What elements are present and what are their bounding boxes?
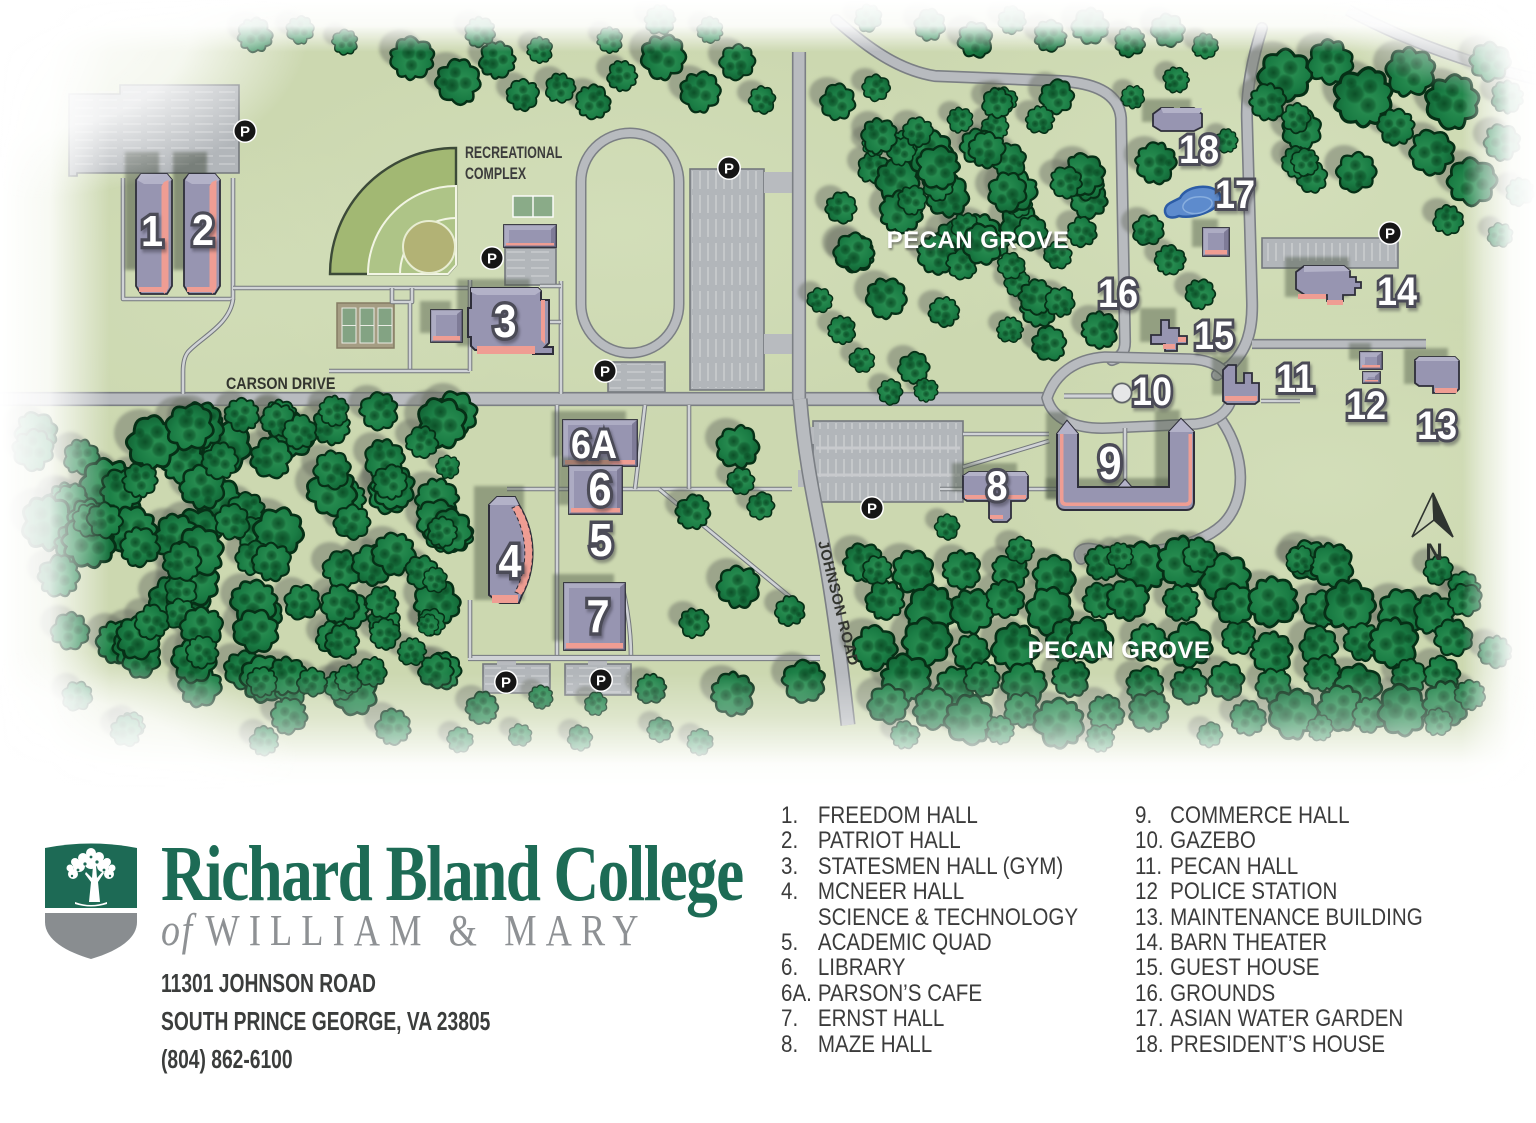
svg-text:3: 3 bbox=[493, 296, 516, 348]
svg-text:4: 4 bbox=[498, 536, 522, 588]
svg-text:6A: 6A bbox=[571, 423, 617, 467]
svg-text:7: 7 bbox=[586, 591, 609, 643]
svg-text:15: 15 bbox=[1194, 314, 1234, 358]
svg-text:8: 8 bbox=[986, 463, 1007, 509]
svg-text:PECAN GROVE: PECAN GROVE bbox=[1028, 637, 1211, 664]
svg-text:11: 11 bbox=[1276, 357, 1314, 401]
svg-text:14: 14 bbox=[1377, 270, 1417, 314]
svg-text:CARSON DRIVE: CARSON DRIVE bbox=[226, 375, 335, 393]
svg-text:P: P bbox=[487, 251, 497, 268]
svg-text:5: 5 bbox=[589, 515, 612, 567]
svg-text:18: 18 bbox=[1179, 128, 1219, 172]
svg-text:N: N bbox=[1425, 539, 1442, 566]
svg-text:1: 1 bbox=[141, 206, 163, 255]
svg-text:16: 16 bbox=[1098, 272, 1138, 316]
svg-text:12: 12 bbox=[1346, 384, 1386, 428]
svg-text:P: P bbox=[724, 161, 734, 178]
svg-text:RECREATIONAL: RECREATIONAL bbox=[465, 144, 562, 162]
svg-text:P: P bbox=[501, 675, 511, 692]
svg-text:PECAN GROVE: PECAN GROVE bbox=[887, 227, 1070, 254]
svg-text:P: P bbox=[596, 673, 606, 690]
svg-text:P: P bbox=[240, 124, 250, 141]
svg-text:6: 6 bbox=[588, 464, 611, 516]
svg-text:COMPLEX: COMPLEX bbox=[465, 165, 526, 183]
svg-text:2: 2 bbox=[192, 205, 214, 254]
svg-text:10: 10 bbox=[1132, 370, 1172, 414]
svg-text:P: P bbox=[600, 364, 610, 381]
svg-text:9: 9 bbox=[1098, 438, 1121, 490]
svg-text:P: P bbox=[867, 501, 877, 518]
svg-text:13: 13 bbox=[1417, 404, 1457, 448]
svg-text:17: 17 bbox=[1215, 173, 1255, 217]
svg-text:P: P bbox=[1385, 226, 1395, 243]
